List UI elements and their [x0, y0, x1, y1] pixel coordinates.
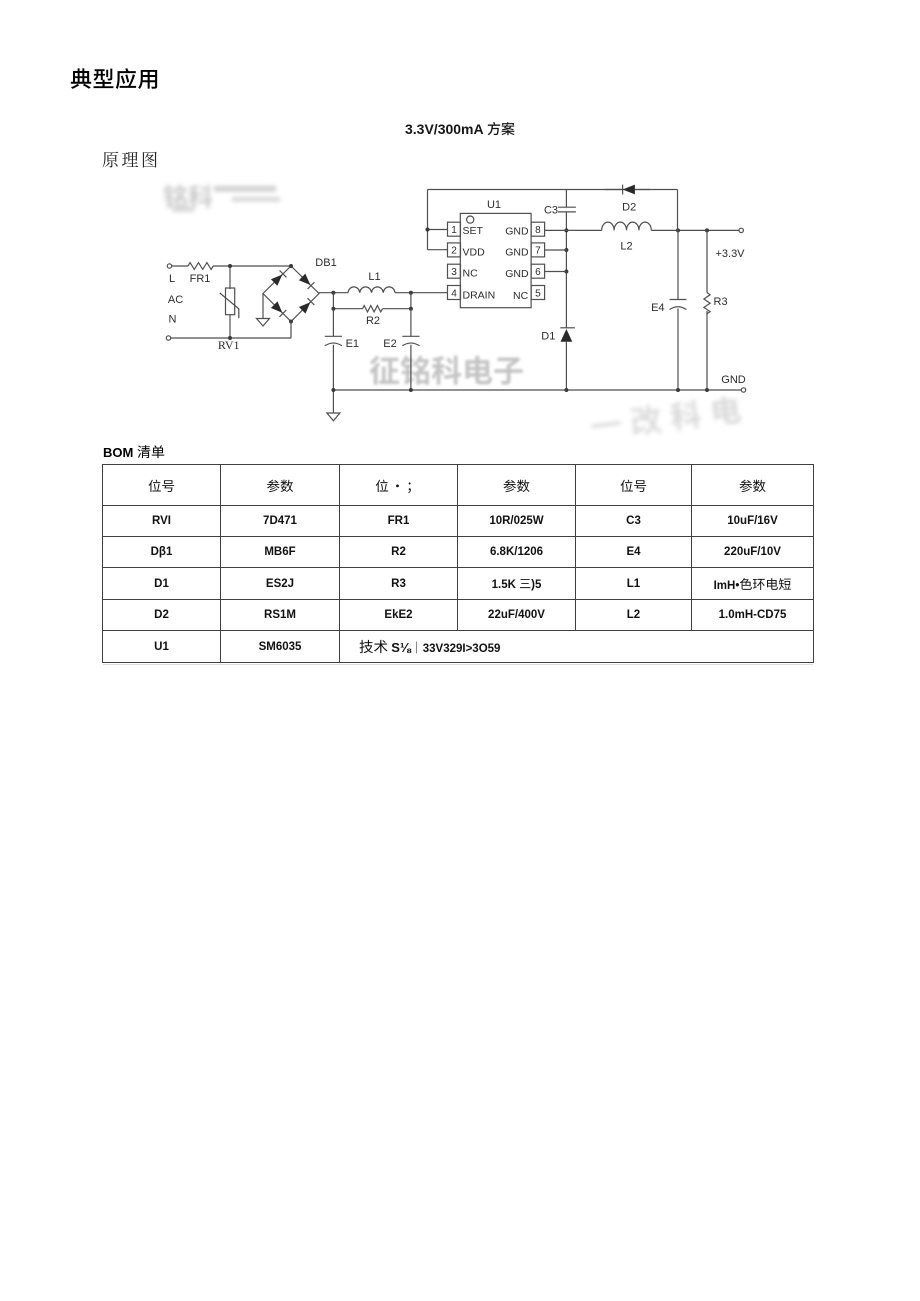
svg-text:8: 8: [535, 225, 541, 236]
svg-text:VDD: VDD: [463, 247, 486, 259]
svg-text:7: 7: [535, 246, 541, 257]
svg-text:E4: E4: [651, 302, 664, 314]
svg-text:L2: L2: [620, 241, 632, 253]
svg-text:2: 2: [451, 246, 457, 257]
svg-text:NC: NC: [513, 290, 529, 302]
svg-text:+3.3V: +3.3V: [715, 248, 745, 260]
svg-text:GND: GND: [505, 226, 529, 238]
svg-text:征铭科电子: 征铭科电子: [369, 346, 524, 391]
svg-text:AC: AC: [168, 294, 183, 306]
svg-text:E2: E2: [383, 338, 396, 350]
svg-text:E1: E1: [346, 338, 359, 350]
svg-text:6: 6: [535, 267, 541, 278]
svg-text:一改科电: 一改科电: [588, 383, 752, 447]
svg-text:DB1: DB1: [315, 257, 336, 269]
svg-text:U1: U1: [487, 199, 501, 211]
svg-text:GND: GND: [505, 268, 529, 280]
svg-text:SET: SET: [463, 225, 484, 237]
svg-text:R3: R3: [714, 296, 728, 308]
svg-text:4: 4: [451, 288, 457, 299]
svg-text:D2: D2: [622, 202, 636, 214]
svg-text:NC: NC: [463, 268, 479, 280]
svg-text:L: L: [169, 273, 175, 285]
svg-text:GND: GND: [505, 247, 529, 259]
svg-text:R2: R2: [366, 315, 380, 327]
svg-text:N: N: [169, 314, 177, 326]
svg-text:3: 3: [451, 267, 457, 278]
svg-text:FR1: FR1: [190, 273, 211, 285]
svg-text:D1: D1: [541, 331, 555, 343]
svg-text:RV1: RV1: [218, 338, 240, 352]
svg-text:1: 1: [451, 225, 457, 236]
svg-text:L1: L1: [368, 271, 380, 283]
svg-text:GND: GND: [721, 374, 746, 386]
svg-text:C3: C3: [544, 205, 558, 217]
svg-text:DRAIN: DRAIN: [463, 289, 496, 301]
svg-text:5: 5: [535, 288, 541, 299]
